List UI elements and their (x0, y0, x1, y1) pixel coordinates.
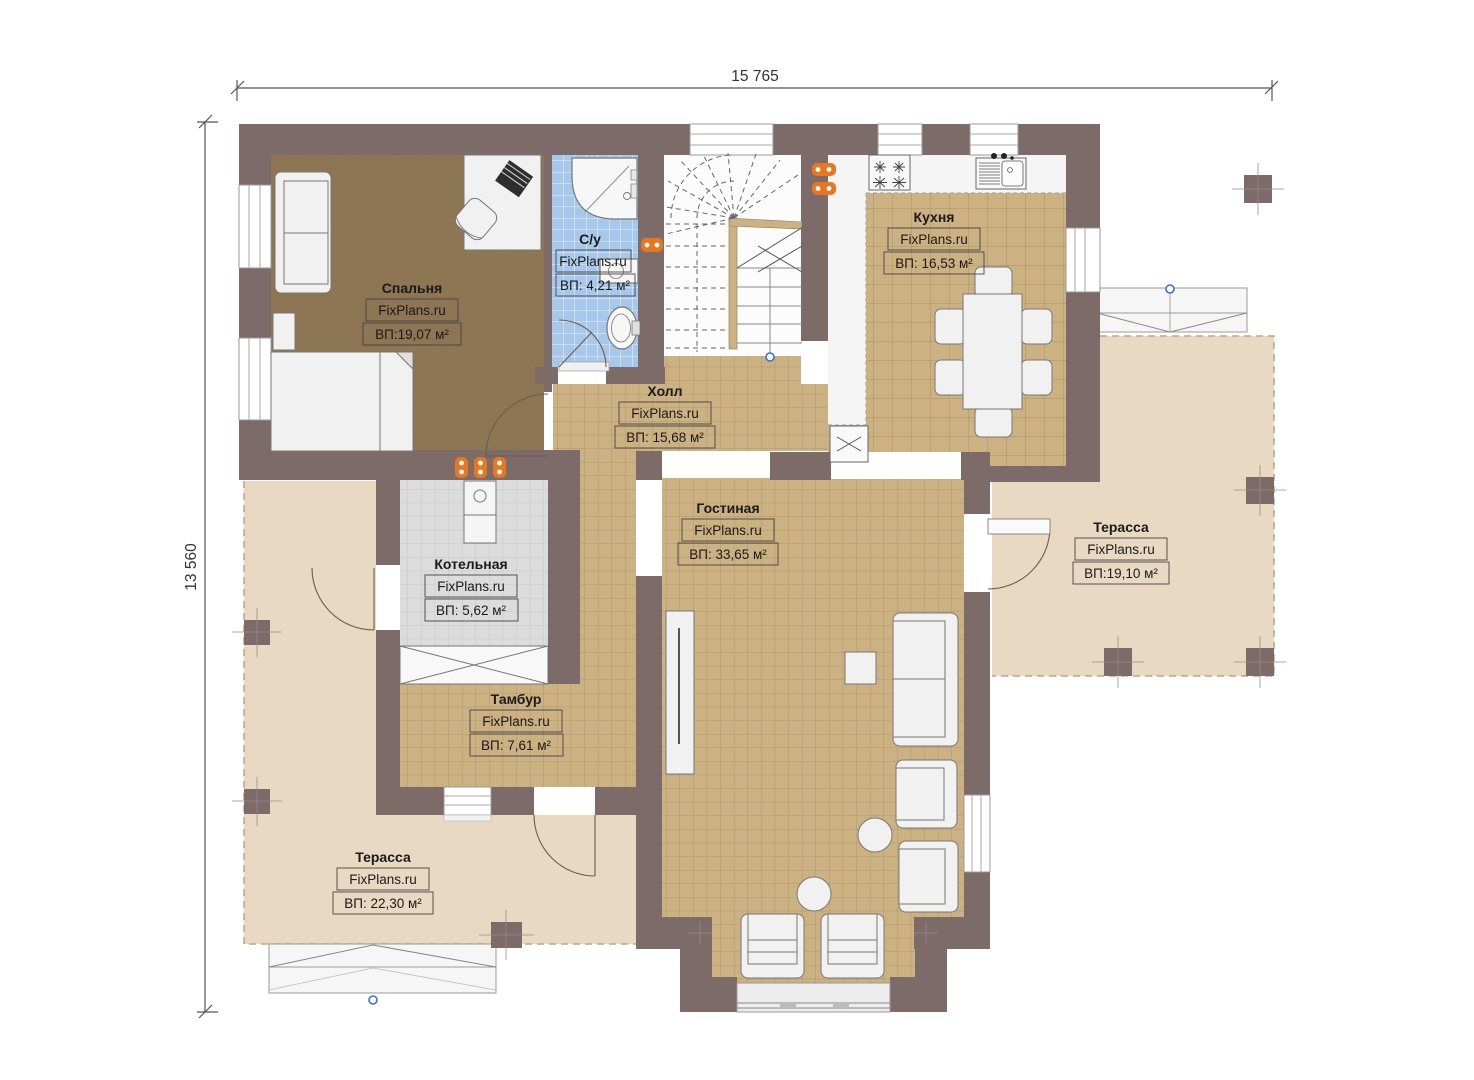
svg-text:FixPlans.ru: FixPlans.ru (482, 714, 550, 729)
svg-text:FixPlans.ru: FixPlans.ru (349, 872, 417, 887)
svg-text:ВП: 5,62 м²: ВП: 5,62 м² (436, 603, 507, 618)
svg-text:13 560: 13 560 (183, 543, 200, 591)
svg-text:Тамбур: Тамбур (491, 691, 542, 707)
svg-text:ВП: 7,61 м²: ВП: 7,61 м² (481, 738, 552, 753)
svg-text:ВП: 16,53 м²: ВП: 16,53 м² (895, 256, 973, 271)
svg-text:ВП: 4,21 м²: ВП: 4,21 м² (560, 278, 631, 293)
svg-text:ВП: 33,65 м²: ВП: 33,65 м² (689, 547, 767, 562)
svg-text:FixPlans.ru: FixPlans.ru (378, 303, 446, 318)
svg-text:FixPlans.ru: FixPlans.ru (559, 254, 627, 269)
svg-text:Холл: Холл (647, 383, 682, 399)
svg-text:Кухня: Кухня (914, 209, 955, 225)
svg-text:Котельная: Котельная (434, 556, 507, 572)
svg-text:ВП: 22,30 м²: ВП: 22,30 м² (344, 896, 422, 911)
svg-text:15 765: 15 765 (731, 68, 778, 85)
svg-text:Терасса: Терасса (355, 849, 411, 865)
svg-text:ВП: 15,68 м²: ВП: 15,68 м² (626, 430, 704, 445)
svg-text:ВП:19,07 м²: ВП:19,07 м² (375, 327, 449, 342)
svg-text:FixPlans.ru: FixPlans.ru (900, 232, 968, 247)
svg-text:FixPlans.ru: FixPlans.ru (1087, 542, 1155, 557)
svg-text:ВП:19,10 м²: ВП:19,10 м² (1084, 566, 1158, 581)
svg-text:Спальня: Спальня (382, 280, 442, 296)
svg-text:FixPlans.ru: FixPlans.ru (437, 579, 505, 594)
svg-text:FixPlans.ru: FixPlans.ru (631, 406, 699, 421)
svg-text:Гостиная: Гостиная (696, 500, 759, 516)
svg-text:С/у: С/у (579, 231, 601, 247)
svg-text:Терасса: Терасса (1093, 519, 1149, 535)
svg-text:FixPlans.ru: FixPlans.ru (694, 523, 762, 538)
